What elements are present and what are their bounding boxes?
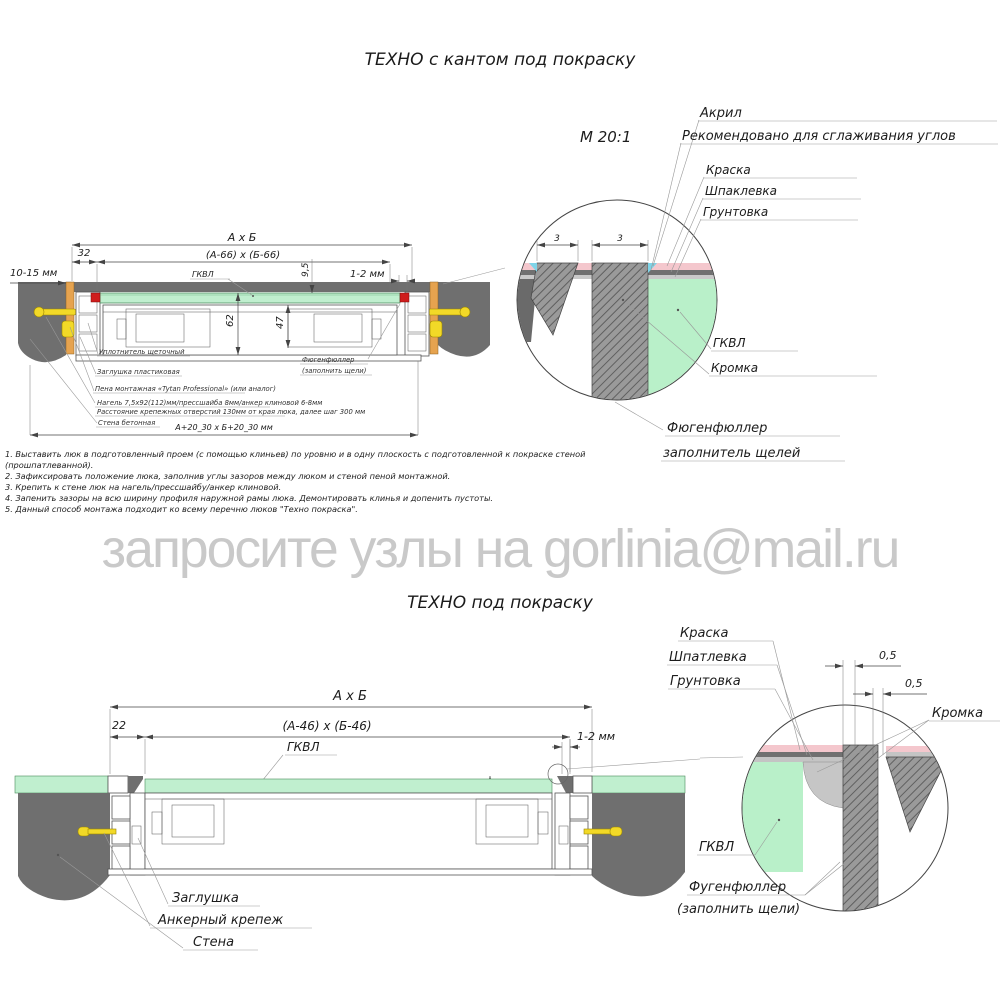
label-edge: Кромка xyxy=(711,361,758,375)
detail-scale: М 20:1 xyxy=(580,128,631,146)
corner-kant xyxy=(400,293,409,302)
installation-notes: 1. Выставить люк в подготовленный проем … xyxy=(5,449,665,515)
note-3: 3. Крепить к стене люк на нагель/прессша… xyxy=(5,482,665,493)
dim-opening: А+20_30 х Б+20_30 мм xyxy=(174,423,273,432)
label-edge: Кромка xyxy=(932,706,983,721)
filler-wedge xyxy=(128,776,143,793)
dim-overall: А х Б xyxy=(332,689,367,704)
corner-kant xyxy=(91,293,100,302)
gkvl-label: ГКВЛ xyxy=(192,270,214,279)
gkvl-label: ГКВЛ xyxy=(287,740,319,754)
dim-overall: А х Б xyxy=(227,231,257,244)
callout-spacing: Расстояние крепежных отверстий 130мм от … xyxy=(97,408,365,416)
label-filler-2: заполнитель щелей xyxy=(663,446,800,461)
label-primer: Грунтовка xyxy=(703,205,768,219)
callout-dowel: Нагель 7,5х92(112)мм/прессшайба 8мм/анке… xyxy=(97,399,322,407)
gkvl-area xyxy=(740,762,803,872)
dim-05b: 0,5 xyxy=(905,677,923,690)
dim-12: 1-2 мм xyxy=(350,269,385,280)
frame-edge xyxy=(843,745,878,920)
section-tehno-kant: А х Б (А-66) х (Б-66) 32 10-15 мм ГКВЛ 9… xyxy=(0,215,505,455)
concrete-wall xyxy=(18,793,110,900)
dim-32: 32 xyxy=(78,248,91,259)
detail-leader xyxy=(443,268,505,284)
callout-filler-2: (заполнить щели) xyxy=(302,367,366,375)
hatch-door xyxy=(145,793,552,869)
primer-layer xyxy=(886,752,948,757)
paint-layer xyxy=(740,745,843,752)
title-top: ТЕХНО с кантом под покраску xyxy=(0,50,1000,70)
drawing-sheet: ТЕХНО с кантом под покраску xyxy=(0,0,1000,1000)
kant-edge xyxy=(592,263,648,408)
wall-gkvl xyxy=(15,776,108,793)
dim-3b: 3 xyxy=(617,234,623,244)
callout-seal: Уплотнитель щеточный xyxy=(99,348,185,356)
label-gkvl: ГКВЛ xyxy=(713,336,745,350)
label-filler-2: (заполнить щели) xyxy=(677,902,800,917)
label-acryl-note: Рекомендовано для сглаживания углов xyxy=(682,129,956,144)
detail-tehno-kant: М 20:1 3 3 Акрил xyxy=(505,90,1000,490)
callout-wall: Стена бетонная xyxy=(98,419,155,427)
dim-inner: (А-66) х (Б-66) xyxy=(206,250,280,261)
dim-62: 62 xyxy=(225,314,236,327)
note-2: 2. Зафиксировать положение люка, заполни… xyxy=(5,471,665,482)
structure xyxy=(15,759,700,900)
door-gkvl xyxy=(145,779,552,793)
paint-layer xyxy=(886,746,948,752)
note-4: 4. Запенить зазоры на всю ширину профиля… xyxy=(5,493,665,504)
dim-47: 47 xyxy=(275,316,286,329)
callout-filler-1: Фюгенфюллер xyxy=(302,356,355,364)
callout-plug: Заглушка пластиковая xyxy=(97,368,180,376)
dim-22: 22 xyxy=(112,719,126,732)
filler-wedge xyxy=(557,776,573,793)
detail-callout-circle xyxy=(548,764,568,784)
callout-anchor: Анкерный крепеж xyxy=(157,913,283,928)
label-paint: Краска xyxy=(680,626,728,641)
gkvl-panel xyxy=(91,293,409,303)
callout-foam: Пена монтажная «Tytan Professional» (или… xyxy=(95,385,276,393)
label-acryl: Акрил xyxy=(699,106,742,121)
detail-leader xyxy=(700,757,743,758)
dim-95: 9,5 xyxy=(301,262,311,277)
watermark: запросите узлы на gorlinia@mail.ru xyxy=(5,518,995,580)
dim-12: 1-2 мм xyxy=(577,730,615,743)
label-putty: Шпаклевка xyxy=(705,184,777,198)
dim-05a: 0,5 xyxy=(879,649,897,662)
callout-plug: Заглушка xyxy=(172,891,239,906)
note-5: 5. Данный способ монтажа подходит ко все… xyxy=(5,504,665,515)
dim-inner: (А-46) х (Б-46) xyxy=(282,719,371,733)
label-primer: Грунтовка xyxy=(670,674,741,689)
label-putty: Шпатлевка xyxy=(669,650,747,665)
section-tehno: А х Б (А-46) х (Б-46) 22 1-2 мм ГКВЛ 44 … xyxy=(0,680,700,980)
callout-wall: Стена xyxy=(193,935,234,950)
detail-tehno: 0,5 0,5 Краска Шпатлевка Грунтовка Кромк… xyxy=(655,600,1000,945)
dim-3a: 3 xyxy=(554,234,560,244)
label-gkvl: ГКВЛ xyxy=(699,840,734,855)
label-filler-1: Фюгенфюллер xyxy=(667,421,767,436)
note-1: 1. Выставить люк в подготовленный проем … xyxy=(5,449,665,471)
dim-wall-gap: 10-15 мм xyxy=(10,268,58,279)
label-paint: Краска xyxy=(706,163,751,177)
label-filler-1: Фугенфюллер xyxy=(689,880,786,895)
